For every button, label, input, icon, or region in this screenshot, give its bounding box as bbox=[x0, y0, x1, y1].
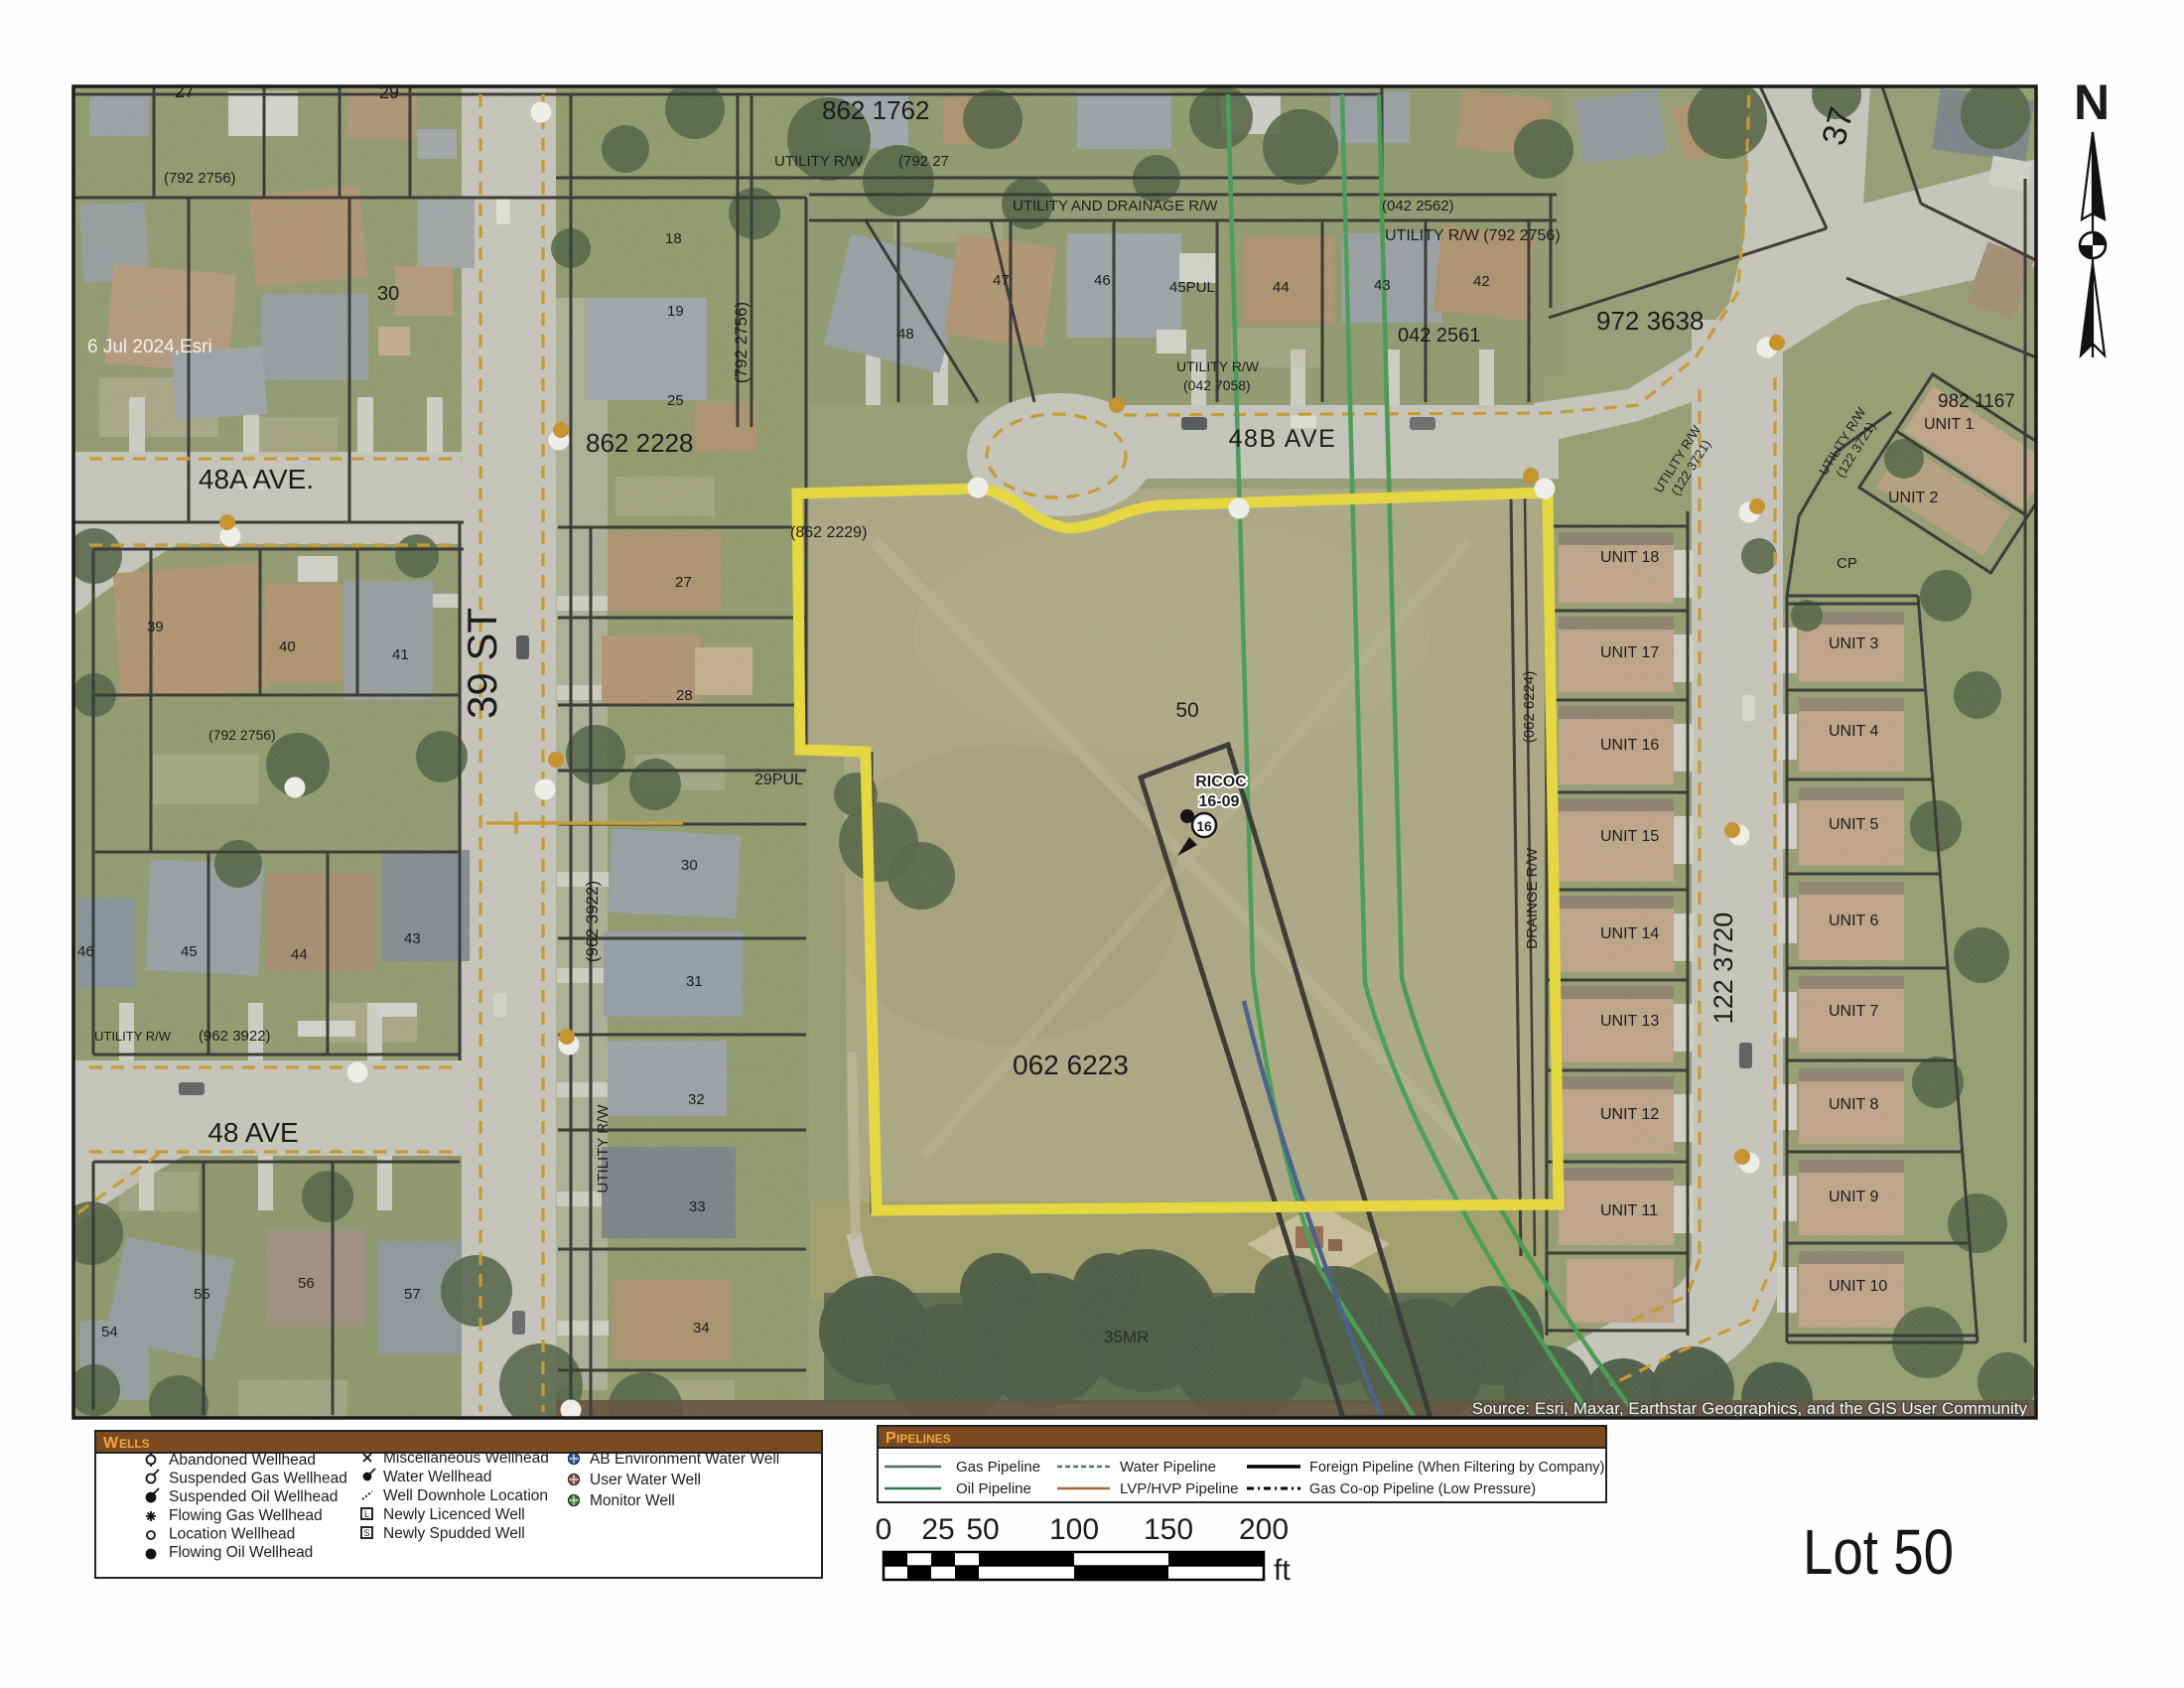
svg-text:47: 47 bbox=[993, 272, 1010, 289]
svg-text:UNIT 14: UNIT 14 bbox=[1600, 925, 1659, 942]
svg-text:UNIT 16: UNIT 16 bbox=[1600, 737, 1659, 754]
svg-text:Abandoned Wellhead: Abandoned Wellhead bbox=[169, 1452, 316, 1469]
svg-text:(042 7058): (042 7058) bbox=[1183, 377, 1251, 393]
svg-text:AB Environment Water Well: AB Environment Water Well bbox=[590, 1451, 779, 1468]
svg-text:41: 41 bbox=[392, 646, 409, 663]
svg-text:48 AVE: 48 AVE bbox=[207, 1117, 298, 1148]
svg-text:Source: Esri, Maxar, Earthstar: Source: Esri, Maxar, Earthstar Geographi… bbox=[1472, 1399, 2028, 1418]
svg-text:39 ST: 39 ST bbox=[459, 608, 505, 719]
svg-text:Suspended Oil Wellhead: Suspended Oil Wellhead bbox=[169, 1488, 338, 1505]
svg-text:16: 16 bbox=[1196, 818, 1212, 834]
svg-text:45: 45 bbox=[181, 943, 198, 960]
svg-text:UNIT 13: UNIT 13 bbox=[1600, 1013, 1659, 1030]
svg-text:48B AVE: 48B AVE bbox=[1229, 425, 1337, 453]
svg-text:29PUL: 29PUL bbox=[754, 772, 803, 788]
svg-text:0: 0 bbox=[876, 1513, 892, 1546]
svg-text:Water Wellhead: Water Wellhead bbox=[383, 1469, 491, 1485]
svg-text:UNIT 1: UNIT 1 bbox=[1924, 416, 1974, 433]
svg-text:35MR: 35MR bbox=[1104, 1328, 1149, 1346]
svg-text:44: 44 bbox=[291, 946, 308, 963]
svg-text:S: S bbox=[363, 1528, 369, 1538]
svg-text:062 6223: 062 6223 bbox=[1013, 1050, 1129, 1080]
svg-text:UNIT 15: UNIT 15 bbox=[1600, 828, 1659, 845]
svg-text:User Water Well: User Water Well bbox=[590, 1472, 701, 1488]
svg-text:862 1762: 862 1762 bbox=[822, 95, 929, 125]
svg-text:42: 42 bbox=[1473, 273, 1490, 290]
svg-text:56: 56 bbox=[298, 1275, 315, 1292]
svg-text:Foreign Pipeline (When Filteri: Foreign Pipeline (When Filtering by Comp… bbox=[1309, 1460, 1604, 1476]
svg-text:ft: ft bbox=[1274, 1554, 1291, 1587]
svg-text:UNIT 8: UNIT 8 bbox=[1829, 1096, 1878, 1113]
svg-text:UTILITY R/W (792 2756): UTILITY R/W (792 2756) bbox=[1385, 227, 1561, 244]
svg-text:46: 46 bbox=[77, 943, 94, 960]
svg-text:Suspended Gas Wellhead: Suspended Gas Wellhead bbox=[169, 1471, 347, 1487]
svg-text:(792 2756): (792 2756) bbox=[732, 302, 751, 383]
svg-text:972 3638: 972 3638 bbox=[1596, 306, 1704, 336]
svg-text:Flowing Oil Wellhead: Flowing Oil Wellhead bbox=[169, 1544, 313, 1561]
svg-text:44: 44 bbox=[1273, 279, 1290, 296]
svg-text:UNIT 12: UNIT 12 bbox=[1600, 1106, 1659, 1123]
svg-text:(792 27: (792 27 bbox=[898, 153, 949, 170]
svg-text:CP: CP bbox=[1837, 555, 1857, 572]
svg-text:UTILITY R/W: UTILITY R/W bbox=[774, 153, 864, 170]
svg-text:25: 25 bbox=[667, 392, 684, 409]
svg-text:UNIT 2: UNIT 2 bbox=[1888, 490, 1938, 506]
svg-text:18: 18 bbox=[665, 230, 682, 247]
svg-text:ELLS: ELLS bbox=[119, 1437, 150, 1451]
svg-text:27: 27 bbox=[675, 574, 692, 591]
svg-text:LVP/HVP Pipeline: LVP/HVP Pipeline bbox=[1120, 1480, 1239, 1497]
svg-text:UNIT 18: UNIT 18 bbox=[1600, 549, 1659, 566]
svg-text:UNIT 11: UNIT 11 bbox=[1600, 1202, 1658, 1219]
svg-text:Monitor Well: Monitor Well bbox=[590, 1492, 675, 1509]
svg-text:(792 2756): (792 2756) bbox=[208, 727, 276, 743]
svg-text:Gas Co-op Pipeline (Low Pressu: Gas Co-op Pipeline (Low Pressure) bbox=[1309, 1481, 1536, 1497]
svg-text:Miscellaneous Wellhead: Miscellaneous Wellhead bbox=[383, 1450, 549, 1467]
svg-text:IPELINES: IPELINES bbox=[896, 1432, 951, 1446]
svg-text:40: 40 bbox=[279, 638, 296, 655]
svg-text:30: 30 bbox=[681, 857, 698, 874]
svg-text:UNIT 5: UNIT 5 bbox=[1829, 816, 1878, 833]
svg-text:45PUL: 45PUL bbox=[1169, 279, 1215, 296]
svg-text:46: 46 bbox=[1094, 272, 1111, 289]
svg-text:(862 2229): (862 2229) bbox=[790, 524, 867, 541]
svg-text:57: 57 bbox=[404, 1286, 421, 1303]
svg-text:UNIT 17: UNIT 17 bbox=[1600, 644, 1659, 661]
svg-text:L: L bbox=[364, 1509, 369, 1519]
svg-text:UTILITY R/W: UTILITY R/W bbox=[94, 1029, 172, 1044]
svg-text:Flowing Gas Wellhead: Flowing Gas Wellhead bbox=[169, 1507, 323, 1524]
svg-text:(962 3922): (962 3922) bbox=[199, 1028, 271, 1045]
svg-text:Oil Pipeline: Oil Pipeline bbox=[956, 1480, 1031, 1497]
svg-text:982 1167: 982 1167 bbox=[1938, 391, 2015, 412]
svg-text:N: N bbox=[2074, 74, 2110, 130]
svg-text:(792 2756): (792 2756) bbox=[164, 170, 236, 187]
svg-text:54: 54 bbox=[101, 1324, 118, 1340]
svg-text:Newly Spudded Well: Newly Spudded Well bbox=[383, 1525, 525, 1542]
svg-text:31: 31 bbox=[686, 973, 703, 990]
svg-text:50: 50 bbox=[1175, 699, 1198, 722]
svg-text:28: 28 bbox=[676, 687, 693, 704]
svg-text:(062 6224): (062 6224) bbox=[1521, 671, 1538, 744]
svg-text:48: 48 bbox=[897, 326, 914, 343]
svg-text:862 2228: 862 2228 bbox=[586, 428, 693, 458]
svg-text:122 3720: 122 3720 bbox=[1708, 913, 1738, 1025]
svg-text:W: W bbox=[103, 1435, 119, 1452]
svg-text:P: P bbox=[886, 1430, 896, 1447]
svg-text:UNIT 10: UNIT 10 bbox=[1829, 1278, 1887, 1295]
svg-text:32: 32 bbox=[688, 1091, 705, 1108]
svg-text:UNIT 6: UNIT 6 bbox=[1829, 913, 1878, 929]
svg-text:39: 39 bbox=[147, 619, 164, 635]
svg-text:43: 43 bbox=[1374, 277, 1391, 294]
svg-text:34: 34 bbox=[693, 1320, 710, 1336]
svg-text:43: 43 bbox=[404, 930, 421, 947]
svg-text:19: 19 bbox=[667, 303, 684, 320]
svg-text:Gas Pipeline: Gas Pipeline bbox=[956, 1459, 1040, 1476]
svg-text:Location Wellhead: Location Wellhead bbox=[169, 1525, 295, 1542]
svg-text:16-09: 16-09 bbox=[1199, 793, 1240, 810]
svg-text:042 2561: 042 2561 bbox=[1398, 325, 1480, 347]
svg-text:UTILITY R/W: UTILITY R/W bbox=[595, 1104, 612, 1194]
svg-text:200: 200 bbox=[1239, 1513, 1289, 1546]
svg-text:(042 2562): (042 2562) bbox=[1382, 198, 1454, 214]
svg-text:UNIT 3: UNIT 3 bbox=[1829, 635, 1878, 652]
svg-text:UNIT 7: UNIT 7 bbox=[1829, 1003, 1878, 1020]
svg-text:150: 150 bbox=[1144, 1513, 1193, 1546]
svg-text:Well Downhole Location: Well Downhole Location bbox=[383, 1487, 548, 1504]
svg-text:48A AVE.: 48A AVE. bbox=[199, 464, 314, 494]
svg-text:UTILITY AND DRAINAGE R/W: UTILITY AND DRAINAGE R/W bbox=[1013, 198, 1218, 214]
svg-text:55: 55 bbox=[194, 1286, 210, 1303]
svg-text:33: 33 bbox=[689, 1198, 706, 1215]
svg-text:UNIT 4: UNIT 4 bbox=[1829, 723, 1878, 740]
svg-text:UNIT 9: UNIT 9 bbox=[1829, 1189, 1878, 1205]
svg-text:RICOC: RICOC bbox=[1195, 774, 1247, 790]
svg-text:Lot 50: Lot 50 bbox=[1803, 1516, 1954, 1588]
svg-text:(962 3922): (962 3922) bbox=[583, 881, 602, 962]
svg-text:6 Jul 2024,Esri: 6 Jul 2024,Esri bbox=[87, 337, 212, 357]
svg-text:DRAINGE R/W: DRAINGE R/W bbox=[1524, 847, 1541, 949]
svg-text:50: 50 bbox=[966, 1513, 999, 1546]
svg-text:100: 100 bbox=[1049, 1513, 1099, 1546]
svg-text:Water Pipeline: Water Pipeline bbox=[1120, 1459, 1216, 1476]
svg-text:30: 30 bbox=[377, 283, 399, 305]
svg-text:UTILITY R/W: UTILITY R/W bbox=[1176, 358, 1260, 374]
svg-text:25: 25 bbox=[921, 1513, 954, 1546]
svg-text:Newly Licenced Well: Newly Licenced Well bbox=[383, 1506, 525, 1523]
